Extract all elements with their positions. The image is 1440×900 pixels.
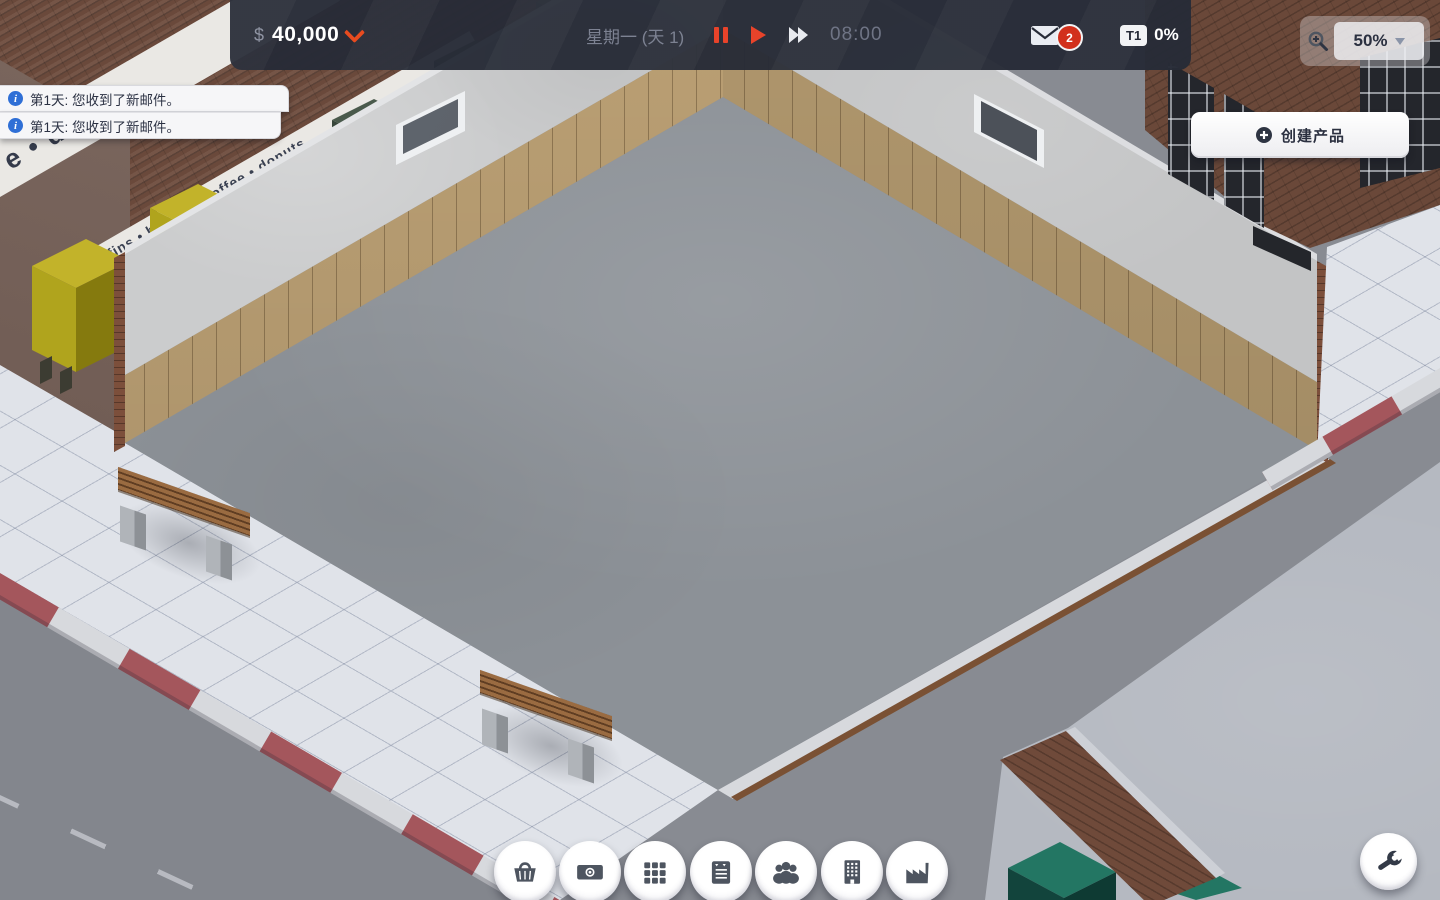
zoom-in-icon: [1306, 29, 1330, 53]
zoom-control[interactable]: 50%: [1300, 16, 1430, 66]
top-hud-bar: $ 40,000 星期一 (天 1) 08:00 2 T1 0%: [230, 0, 1191, 70]
finances-button[interactable]: [559, 841, 621, 900]
chevron-down-icon: [344, 21, 365, 42]
game-time: 08:00: [830, 0, 883, 70]
team-chip: T1: [1120, 25, 1147, 46]
notification-toast[interactable]: i 第1天: 您收到了新邮件。: [0, 85, 289, 112]
game-date: 星期一 (天 1): [586, 0, 684, 70]
play-icon: [751, 26, 766, 44]
basket-icon: [510, 857, 540, 887]
notification-toast[interactable]: i 第1天: 您收到了新邮件。: [0, 112, 281, 139]
products-button[interactable]: [624, 841, 686, 900]
info-icon: i: [8, 91, 23, 106]
create-product-label: 创建产品: [1281, 125, 1345, 146]
notification-text: 第1天: 您收到了新邮件。: [30, 116, 180, 136]
time-label: 08:00: [830, 24, 883, 46]
plus-circle-icon: [1255, 126, 1273, 144]
pause-icon: [723, 27, 728, 43]
building-icon: [837, 857, 867, 887]
create-product-button[interactable]: 创建产品: [1191, 112, 1409, 158]
money-amount: 40,000: [272, 23, 339, 47]
date-label: 星期一 (天 1): [586, 23, 684, 48]
caret-down-icon: [1395, 38, 1405, 45]
info-icon: i: [8, 118, 23, 133]
production-button[interactable]: [886, 841, 948, 900]
game-viewport[interactable]: e • donuts ffins • bagels • coffee • don…: [0, 0, 1440, 900]
team-progress: 0%: [1154, 25, 1179, 45]
wrench-icon: [1375, 848, 1403, 876]
factory-icon: [902, 857, 932, 887]
settings-button[interactable]: [1360, 833, 1417, 890]
notification-stack: i 第1天: 您收到了新邮件。 i 第1天: 您收到了新邮件。: [0, 85, 289, 139]
zoom-level-value: 50%: [1353, 31, 1387, 51]
pause-icon: [714, 27, 719, 43]
play-button[interactable]: [751, 0, 766, 70]
zoom-level-box[interactable]: 50%: [1334, 22, 1424, 60]
fast-forward-icon: [798, 27, 808, 43]
business-button[interactable]: [821, 841, 883, 900]
clipboard-icon: [706, 857, 736, 887]
pause-button[interactable]: [714, 0, 728, 70]
mail-badge-count: 2: [1066, 31, 1073, 45]
products-grid-icon: [640, 857, 670, 887]
staff-button[interactable]: [755, 841, 817, 900]
mail-badge: 2: [1056, 24, 1083, 51]
orders-button[interactable]: [690, 841, 752, 900]
staff-icon: [770, 857, 802, 887]
fast-forward-button[interactable]: [789, 0, 808, 70]
money-dropdown[interactable]: $ 40,000: [254, 0, 362, 70]
notification-text: 第1天: 您收到了新邮件。: [30, 89, 180, 109]
shopping-basket-button[interactable]: [494, 841, 556, 900]
currency-symbol: $: [254, 25, 264, 46]
banknote-icon: [575, 857, 605, 887]
